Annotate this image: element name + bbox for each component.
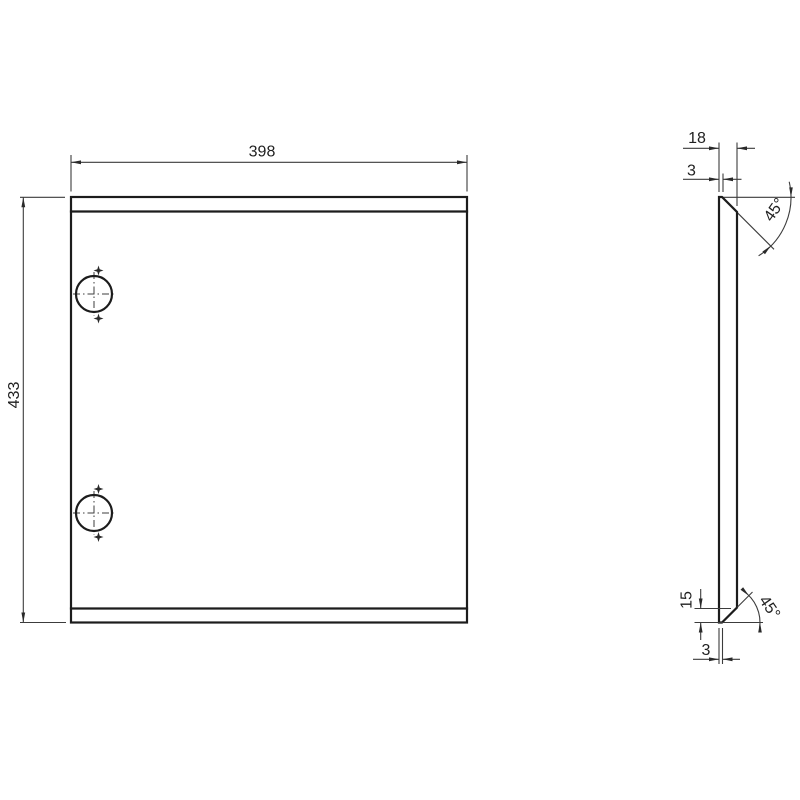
arrowhead-icon: [699, 599, 703, 609]
arrowhead-icon: [789, 187, 793, 197]
arrowhead-icon: [699, 623, 703, 633]
chamfer-extension-line: [737, 592, 753, 608]
arrowhead-icon: [723, 657, 733, 661]
arrowhead-icon: [21, 613, 25, 623]
arrowhead-icon: [709, 177, 719, 181]
dim-bottom-thickness: 3: [693, 628, 740, 664]
engineering-drawing: 398 433: [0, 0, 800, 800]
profile-outline: [719, 197, 737, 623]
dim-bottom-thickness-label: 3: [702, 642, 711, 659]
dim-bottom-angle: 45°: [737, 587, 783, 632]
arrowhead-icon: [758, 623, 762, 633]
dim-top-thickness-label: 3: [687, 163, 696, 180]
arrowhead-icon: [21, 197, 25, 207]
dim-top-thickness: 3: [683, 163, 742, 193]
front-view: 398 433: [6, 144, 467, 623]
dim-bottom-height-label: 15: [679, 591, 696, 609]
arrowhead-icon: [457, 160, 467, 164]
dim-depth-label: 18: [688, 130, 706, 147]
dim-top-angle-label: 45°: [761, 195, 789, 225]
dim-height: 433: [6, 197, 66, 622]
panel-outline: [71, 197, 467, 623]
arrowhead-icon: [737, 146, 747, 150]
arrowhead-icon: [723, 177, 733, 181]
drawing-canvas: 398 433: [0, 0, 800, 800]
dim-width: 398: [71, 144, 467, 192]
dim-width-label: 398: [249, 144, 276, 161]
arrowhead-icon: [709, 657, 719, 661]
arrowhead-icon: [741, 587, 749, 595]
side-view: 18 3 45° 15: [679, 130, 796, 664]
arrowhead-icon: [709, 146, 719, 150]
dim-height-label: 433: [6, 382, 23, 409]
arrowhead-icon: [71, 160, 81, 164]
